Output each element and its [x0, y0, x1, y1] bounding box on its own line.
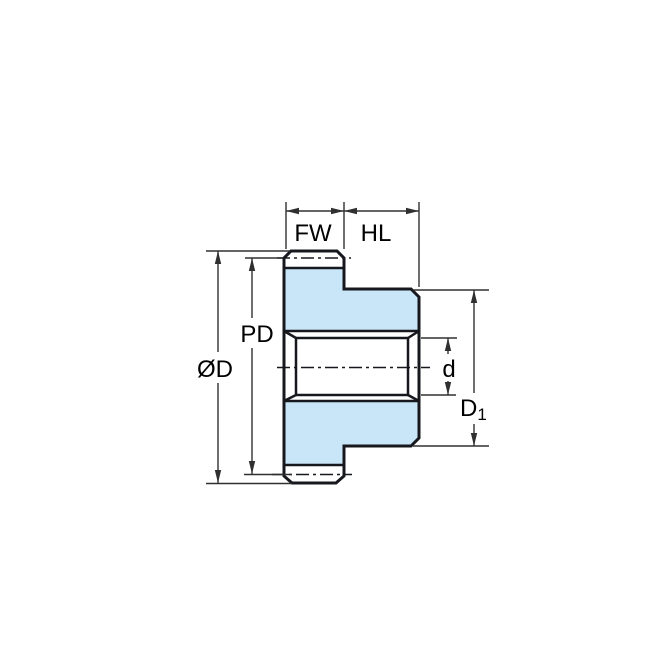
- pd-arrow-up: [249, 258, 255, 271]
- gear-body-lower-section: [284, 401, 419, 465]
- od-arrow-up: [215, 251, 221, 264]
- label-pitch-diameter: PD: [240, 321, 273, 348]
- dimension-bore-diameter: d: [421, 338, 459, 395]
- bore: [284, 331, 419, 401]
- gear-body-upper-section: [284, 268, 419, 331]
- label-outside-diameter: ØD: [197, 356, 233, 383]
- d-arrow-down: [445, 382, 451, 395]
- gear-dimension-diagram: FW HL ØD PD: [0, 0, 670, 670]
- fw-arrow-left: [286, 208, 299, 214]
- d1-arrow-up: [471, 290, 477, 303]
- label-hub-length: HL: [361, 220, 392, 247]
- pd-arrow-down: [249, 461, 255, 474]
- od-arrow-down: [215, 470, 221, 483]
- diagram-canvas: FW HL ØD PD: [0, 0, 670, 670]
- hl-arrow-left: [344, 208, 357, 214]
- label-face-width: FW: [294, 220, 332, 247]
- d1-arrow-down: [471, 433, 477, 446]
- label-bore-diameter: d: [442, 356, 455, 383]
- hl-arrow-right: [406, 208, 419, 214]
- fw-arrow-right: [331, 208, 344, 214]
- d-arrow-up: [445, 338, 451, 351]
